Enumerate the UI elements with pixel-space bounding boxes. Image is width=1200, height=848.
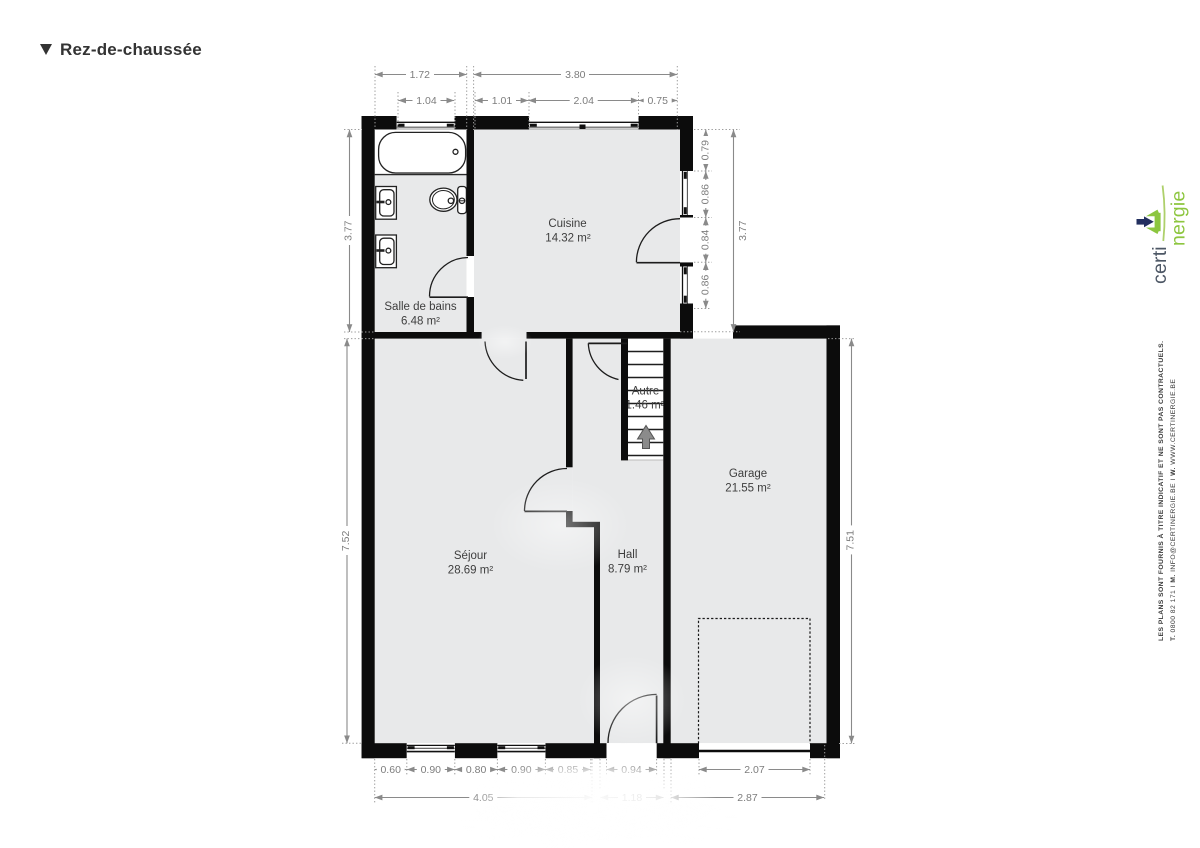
svg-text:0.90: 0.90 — [421, 764, 442, 776]
svg-text:7.51: 7.51 — [845, 530, 857, 551]
svg-text:Garage: Garage — [729, 468, 767, 480]
svg-text:1.01: 1.01 — [492, 95, 513, 107]
svg-text:8.79 m²: 8.79 m² — [608, 564, 647, 576]
svg-text:0.86: 0.86 — [699, 275, 711, 296]
svg-text:Cuisine: Cuisine — [548, 218, 586, 230]
svg-text:LES PLANS SONT FOURNIS À TITRE: LES PLANS SONT FOURNIS À TITRE INDICATIF… — [1156, 341, 1165, 641]
svg-text:1.72: 1.72 — [410, 69, 431, 81]
svg-text:Hall: Hall — [618, 549, 638, 561]
svg-text:14.32 m²: 14.32 m² — [545, 233, 591, 245]
svg-text:0.75: 0.75 — [647, 95, 668, 107]
svg-text:0.80: 0.80 — [466, 764, 487, 776]
svg-text:7.52: 7.52 — [340, 531, 352, 552]
svg-text:nergie: nergie — [1168, 191, 1190, 246]
svg-text:3.80: 3.80 — [565, 69, 586, 81]
svg-text:0.86: 0.86 — [699, 184, 711, 205]
svg-text:6.48 m²: 6.48 m² — [401, 316, 440, 328]
svg-text:2.87: 2.87 — [737, 792, 758, 804]
svg-text:2.04: 2.04 — [573, 95, 594, 107]
svg-text:3.77: 3.77 — [343, 220, 355, 241]
svg-text:0.84: 0.84 — [699, 230, 711, 251]
svg-text:2.07: 2.07 — [744, 764, 765, 776]
svg-text:T. 0800 82 171 I M. INFO@CERTI: T. 0800 82 171 I M. INFO@CERTINERGIE.BE … — [1170, 379, 1177, 641]
svg-text:0.60: 0.60 — [380, 764, 401, 776]
svg-text:3.77: 3.77 — [737, 220, 749, 241]
svg-text:21.55 m²: 21.55 m² — [725, 483, 771, 495]
svg-text:Autre: Autre — [632, 386, 660, 398]
svg-text:certi: certi — [1149, 246, 1171, 284]
svg-text:28.69 m²: 28.69 m² — [448, 565, 494, 577]
svg-text:0.79: 0.79 — [699, 140, 711, 161]
svg-text:1.46 m²: 1.46 m² — [626, 400, 665, 412]
svg-text:Séjour: Séjour — [454, 550, 487, 562]
svg-text:1.04: 1.04 — [416, 95, 437, 107]
svg-text:Salle de bains: Salle de bains — [384, 301, 456, 313]
